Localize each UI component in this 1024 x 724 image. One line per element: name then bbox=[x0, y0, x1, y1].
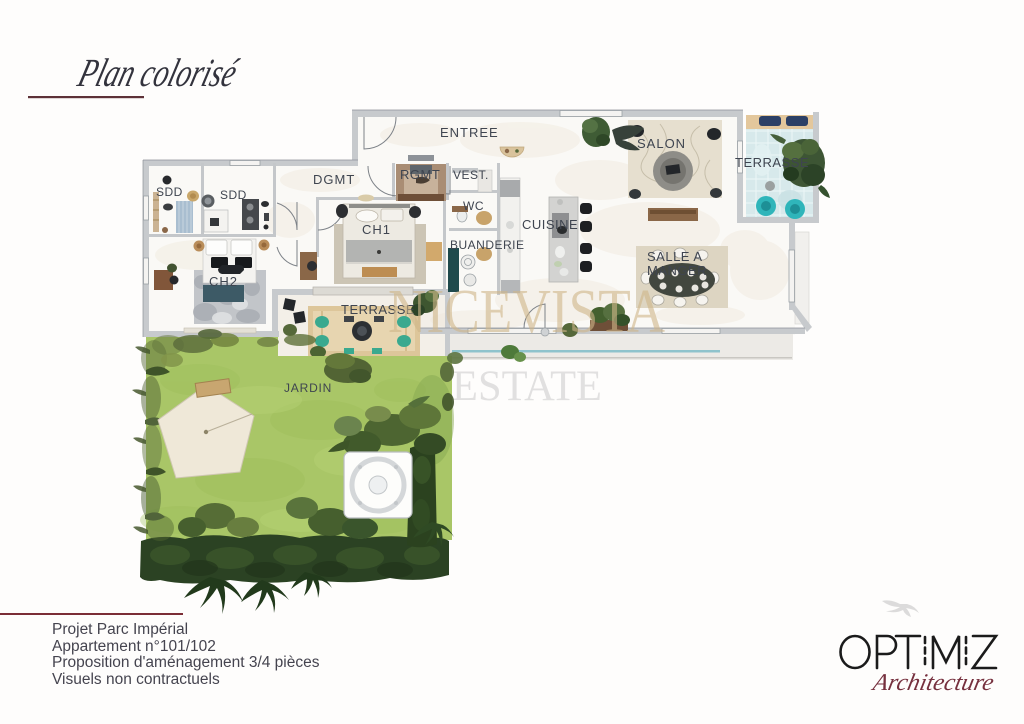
svg-text:SDD: SDD bbox=[220, 188, 247, 202]
svg-text:WC: WC bbox=[463, 199, 484, 213]
svg-text:Plan colorisé: Plan colorisé bbox=[73, 51, 244, 95]
svg-text:CUISINE: CUISINE bbox=[522, 217, 578, 232]
svg-text:ESTATE: ESTATE bbox=[452, 363, 602, 410]
svg-text:CH1: CH1 bbox=[362, 222, 391, 237]
svg-text:JARDIN: JARDIN bbox=[284, 381, 332, 395]
svg-text:NICEVISTA: NICEVISTA bbox=[388, 278, 665, 346]
svg-text:RGMT: RGMT bbox=[400, 167, 440, 182]
svg-text:VEST.: VEST. bbox=[453, 168, 489, 182]
svg-text:Architecture: Architecture bbox=[869, 669, 997, 696]
svg-text:CH2: CH2 bbox=[209, 274, 238, 289]
svg-text:Projet Parc Impérial: Projet Parc Impérial bbox=[52, 621, 188, 638]
svg-text:Visuels non contractuels: Visuels non contractuels bbox=[52, 671, 220, 688]
svg-text:BUANDERIE: BUANDERIE bbox=[450, 238, 525, 252]
svg-text:ENTREE: ENTREE bbox=[440, 125, 499, 140]
svg-text:Proposition d'aménagement 3/4: Proposition d'aménagement 3/4 pièces bbox=[52, 654, 320, 671]
svg-text:DGMT: DGMT bbox=[313, 172, 355, 187]
svg-text:TERRASSE: TERRASSE bbox=[735, 155, 809, 170]
svg-text:SALON: SALON bbox=[637, 136, 686, 151]
svg-text:MANGER: MANGER bbox=[647, 263, 707, 278]
svg-text:Appartement n°101/102: Appartement n°101/102 bbox=[52, 638, 216, 655]
svg-text:SDD: SDD bbox=[156, 185, 183, 199]
svg-text:SALLE A: SALLE A bbox=[647, 249, 703, 264]
